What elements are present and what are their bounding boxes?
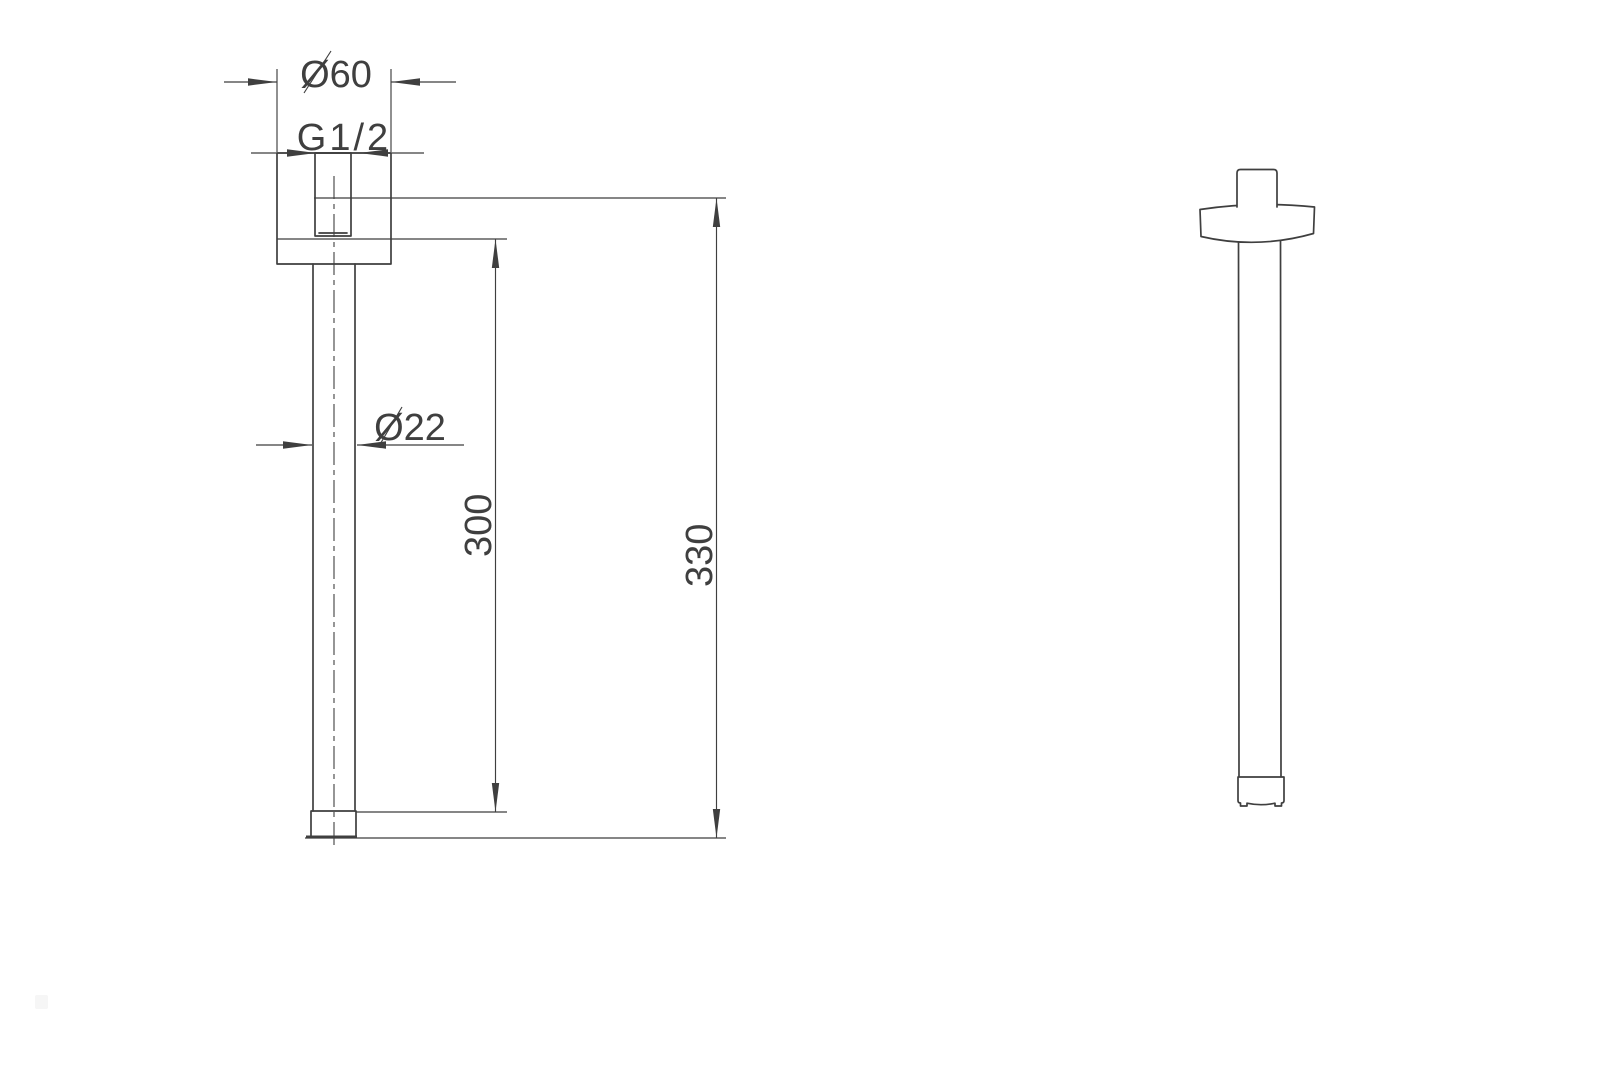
dimension-label-tube-diameter: Ø22 <box>374 407 446 449</box>
technical-drawing-page: Ø60 G1/2 Ø22 <box>0 0 1603 1080</box>
dimension-tube-diameter: Ø22 <box>256 407 464 449</box>
arrowhead-icon <box>713 198 720 227</box>
dimension-label-arm-length: 300 <box>458 494 500 557</box>
flange-disc-outline <box>1200 205 1315 243</box>
arrowhead-icon <box>492 783 499 812</box>
thread-bore-outline <box>315 153 351 236</box>
end-cap-outline <box>1238 777 1284 806</box>
dimension-label-overall-length: 330 <box>679 524 721 587</box>
perspective-view <box>1200 170 1315 807</box>
front-view: Ø60 G1/2 Ø22 <box>224 51 726 849</box>
arrowhead-icon <box>391 78 420 85</box>
arrowhead-icon <box>492 239 499 268</box>
dimension-arm-length: 300 <box>277 239 507 812</box>
dimension-label-flange-diameter: Ø60 <box>300 54 372 96</box>
arrowhead-icon <box>713 809 720 838</box>
thread-stub-outline <box>1237 170 1277 208</box>
tube-right-edge <box>1281 228 1282 777</box>
dimension-overall-length: 330 <box>305 198 726 838</box>
tube-left-edge <box>1239 228 1240 777</box>
dimension-label-thread-size: G1/2 <box>297 117 391 159</box>
shower-arm-drawing: Ø60 G1/2 Ø22 <box>0 0 1603 1080</box>
arrowhead-icon <box>283 441 312 448</box>
arrowhead-icon <box>248 78 277 85</box>
